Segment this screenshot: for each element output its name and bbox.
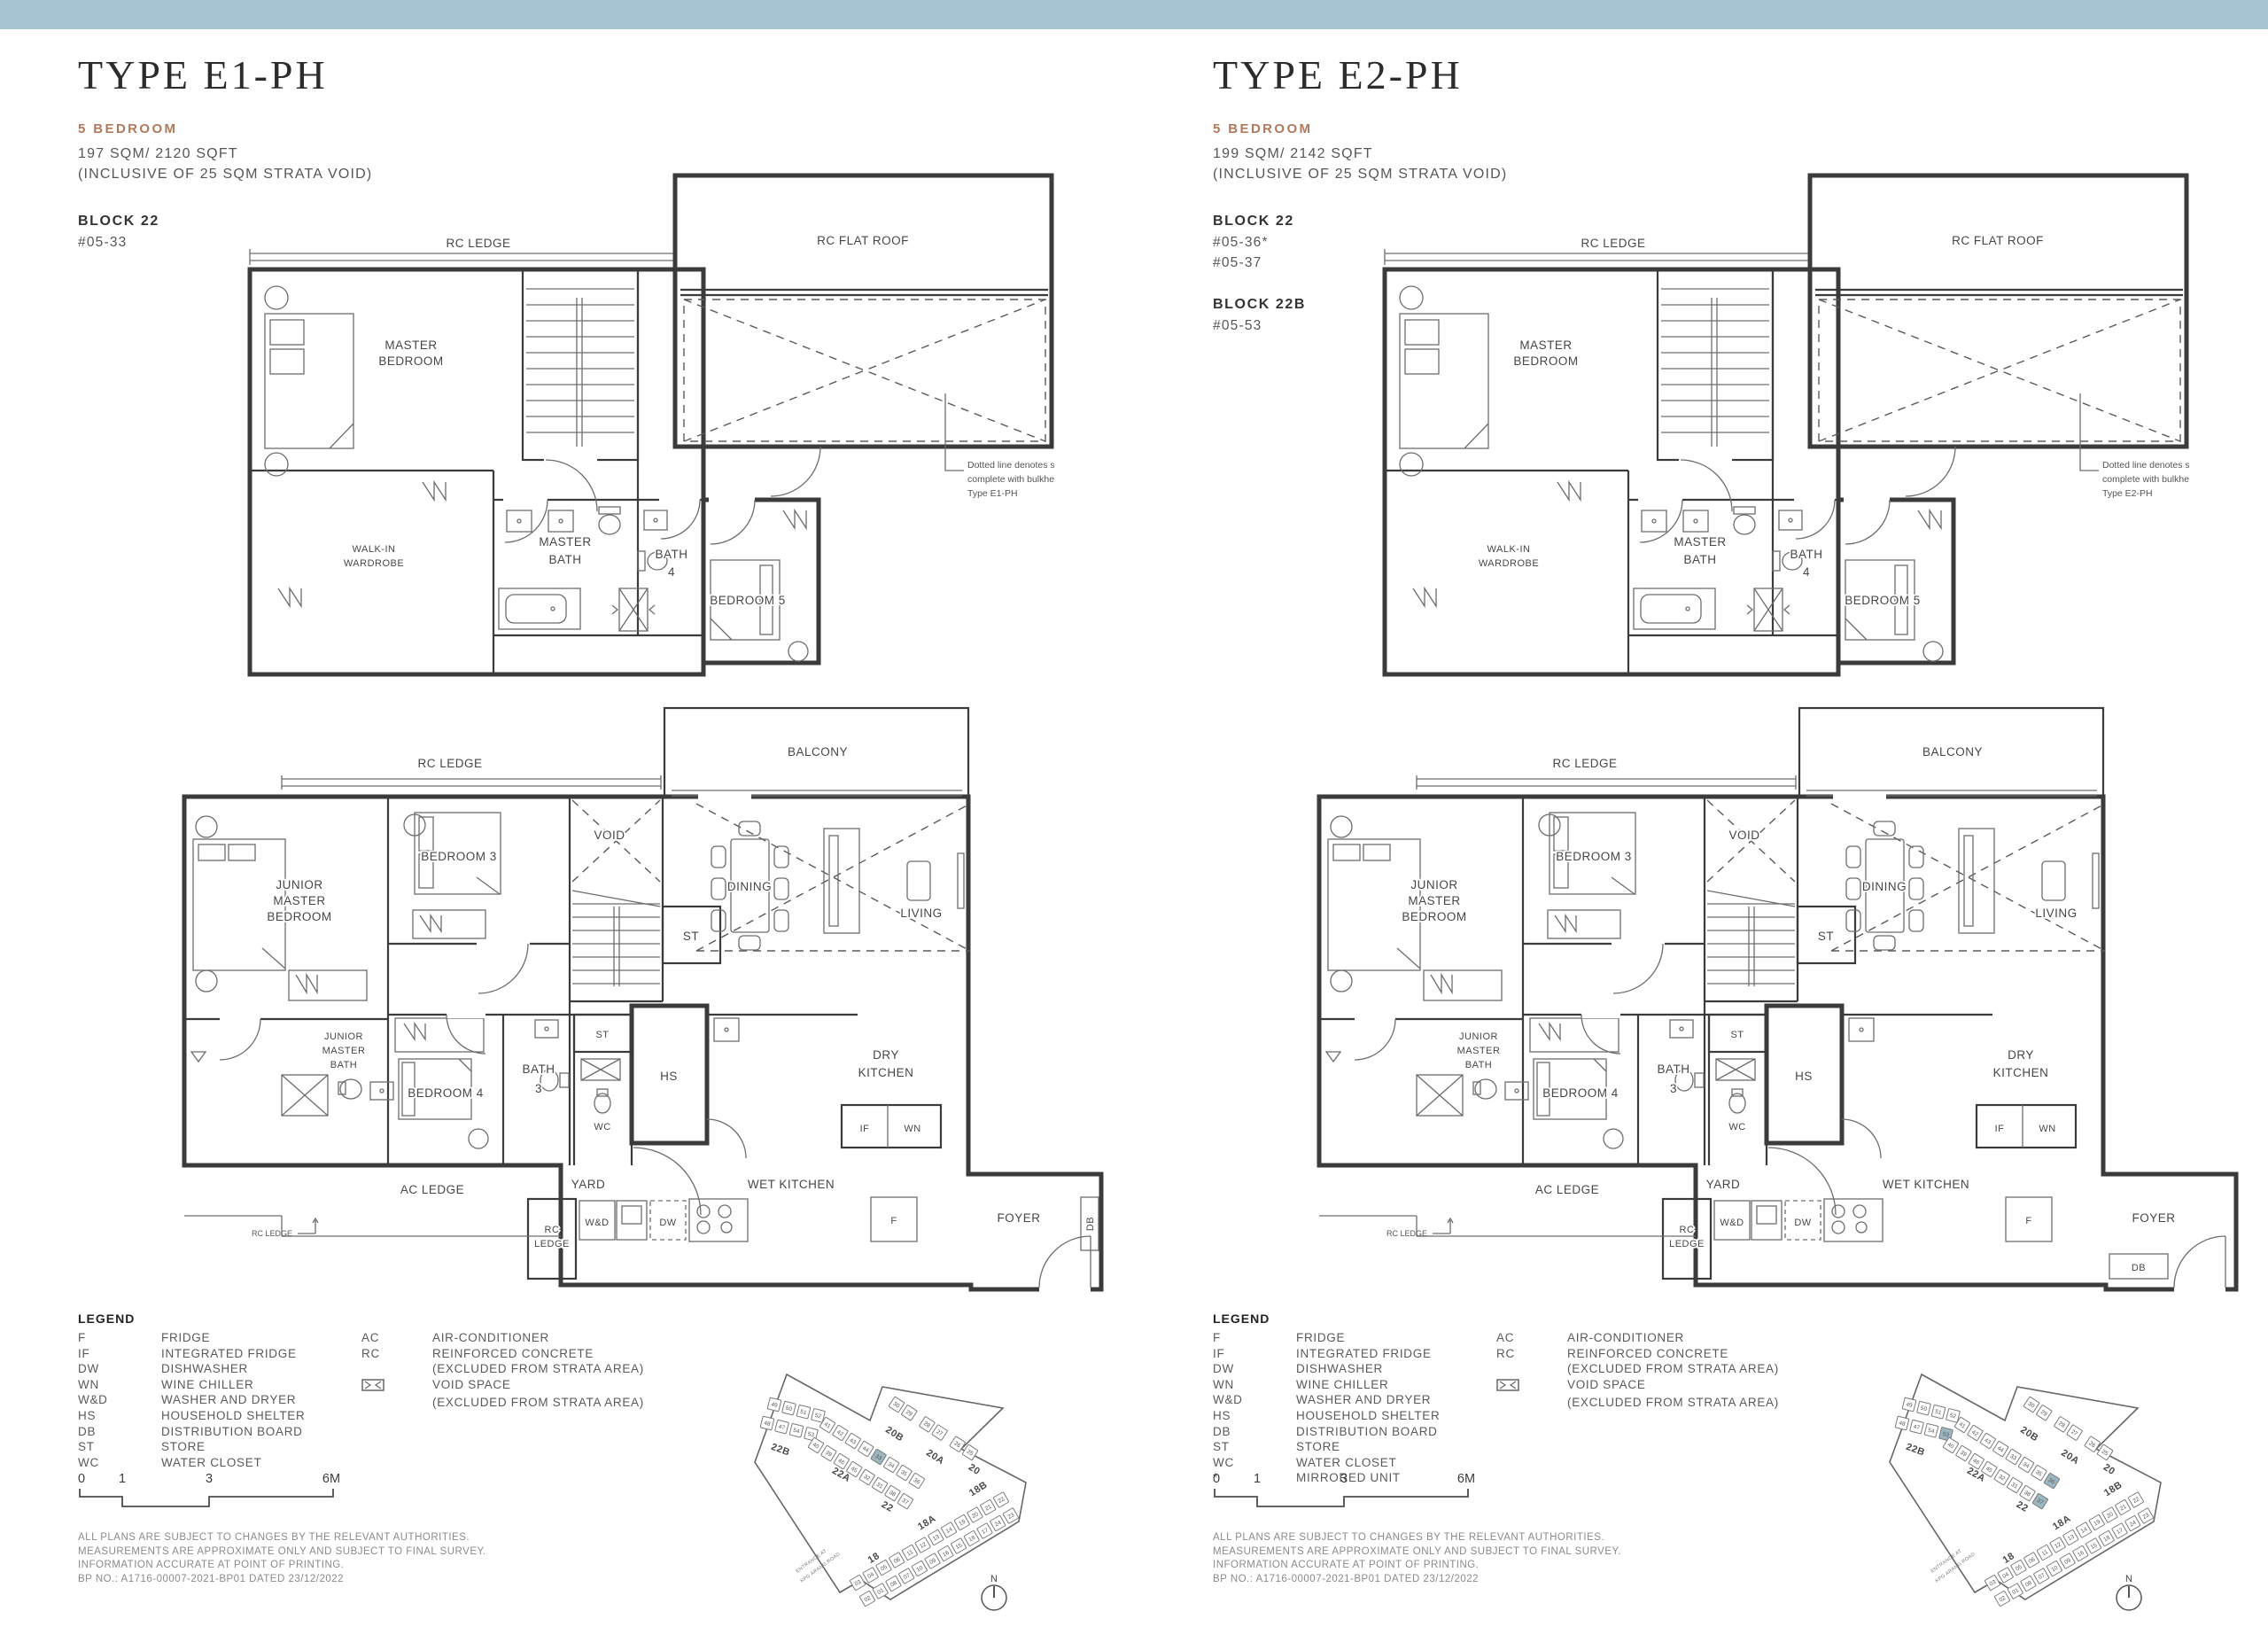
site-stack: 02 <box>1994 1591 2010 1607</box>
lower-floor-plan: RC LEDGE BALCONY JUNIOR MASTER BEDROOM B… <box>1301 704 2242 1358</box>
site-plan-map: 22B22A2220B20A201818A18B4950515248475453… <box>1888 1369 2182 1635</box>
disclaimer-line: ALL PLANS ARE SUBJECT TO CHANGES BY THE … <box>1213 1531 1621 1545</box>
legend-right-column: ACAIR-CONDITIONER RCREINFORCED CONCRETE … <box>1496 1330 1806 1486</box>
room-label-bedroom5: BEDROOM 5 <box>710 594 786 607</box>
legend-row: (EXCLUDED FROM STRATA AREA) <box>361 1361 672 1377</box>
void-hatch <box>1707 800 2105 951</box>
site-stack: 37 <box>897 1493 913 1509</box>
site-stack: 18 <box>964 1530 980 1546</box>
site-stack: 10 <box>912 1560 928 1576</box>
site-stack: 04 <box>863 1568 879 1584</box>
upper-stairs <box>526 289 634 447</box>
site-stack: 20 <box>2102 1507 2118 1523</box>
site-block-label: 18A <box>2051 1514 2073 1533</box>
bedroom-tag: 5 BEDROOM <box>1213 121 1709 136</box>
room-label-store: ST <box>683 930 699 943</box>
site-stack: 28 <box>2054 1416 2070 1432</box>
lower-walls <box>184 708 1101 1289</box>
room-label-walk-in-wardrobe: WALK-IN <box>1487 544 1531 555</box>
strata-void-annotation: Type E2-PH <box>2102 488 2153 499</box>
legend-row: (EXCLUDED FROM STRATA AREA) <box>1496 1361 1806 1377</box>
site-stack: 51 <box>1931 1405 1946 1419</box>
scale-number: 0 <box>78 1472 85 1486</box>
room-label-hs: HS <box>1795 1070 1813 1083</box>
legend-row: HSHOUSEHOLD SHELTER <box>1213 1408 1496 1424</box>
strata-void-annotation: Dotted line denotes strata void <box>2102 460 2189 471</box>
label-integrated-fridge: IF <box>1995 1124 2005 1134</box>
site-stack: 27 <box>2067 1425 2083 1441</box>
site-block-label: 20A <box>924 1448 946 1467</box>
room-label-junior-master-bedroom: MASTER <box>273 894 325 907</box>
room-label-junior-master-bath: BATH <box>1465 1060 1493 1070</box>
site-stack: 42 <box>1967 1425 1983 1441</box>
room-label-balcony: BALCONY <box>1922 745 1983 759</box>
room-label-master-bedroom: MASTER <box>1519 339 1572 352</box>
room-label-store: ST <box>1818 930 1834 943</box>
site-stack: 44 <box>858 1441 874 1457</box>
site-stack: 31 <box>872 1477 888 1493</box>
site-stack: 08 <box>886 1576 902 1592</box>
site-stack: 49 <box>767 1397 781 1412</box>
legend-row: ACAIR-CONDITIONER <box>361 1330 672 1346</box>
site-stack: 21 <box>2115 1499 2131 1515</box>
site-stack: 03 <box>1984 1575 2000 1591</box>
scale-number: 1 <box>119 1472 126 1486</box>
site-block-label: 18B <box>967 1480 990 1499</box>
site-stack: 29 <box>2036 1405 2052 1420</box>
site-stack: 17 <box>2112 1523 2128 1539</box>
annotation-leader <box>945 393 964 471</box>
annotation-leader <box>2080 393 2099 471</box>
upper-stairs <box>1661 289 1769 447</box>
site-stack: 16 <box>2072 1545 2088 1561</box>
room-label-dry-kitchen: KITCHEN <box>1993 1066 2049 1079</box>
site-stack: 34 <box>883 1457 899 1473</box>
room-label-bedroom4: BEDROOM 4 <box>1542 1086 1619 1100</box>
floorplan-panel-left: TYPE E1-PH 5 BEDROOM 197 SQM/ 2120 SQFT … <box>0 0 1134 1650</box>
site-stack: 09 <box>925 1553 941 1569</box>
room-label-master-bedroom: MASTER <box>384 339 437 352</box>
room-label-bath4: BATH <box>655 548 687 561</box>
legend: LEGEND FFRIDGE IFINTEGRATED FRIDGE DWDIS… <box>78 1310 680 1470</box>
site-stack: 13 <box>928 1529 944 1545</box>
site-stack: 38 <box>885 1485 901 1501</box>
legend-row: STSTORE <box>1213 1439 1496 1455</box>
legend-row: STSTORE <box>78 1439 361 1455</box>
site-stack: 23 <box>1003 1508 1019 1524</box>
disclaimer: ALL PLANS ARE SUBJECT TO CHANGES BY THE … <box>1213 1531 1621 1586</box>
site-stack: 47 <box>775 1420 789 1434</box>
site-stack: 11 <box>902 1545 918 1560</box>
legend-row: WCWATER CLOSET <box>78 1455 361 1471</box>
legend-row: FFRIDGE <box>1213 1330 1496 1346</box>
site-block-label: 20 <box>967 1462 983 1477</box>
legend-left-column: FFRIDGE IFINTEGRATED FRIDGE DWDISHWASHER… <box>78 1330 361 1470</box>
room-label-junior-master-bath: JUNIOR <box>1459 1031 1498 1042</box>
annotation-rc-ledge: RC LEDGE <box>1386 1229 1427 1238</box>
site-stack: 44 <box>1992 1441 2008 1457</box>
room-label-rc-ledge: RC LEDGE <box>417 757 482 770</box>
room-label-dry-kitchen: KITCHEN <box>858 1066 914 1079</box>
site-block-label: 18A <box>916 1514 938 1533</box>
scale-number: 6M <box>322 1472 340 1486</box>
legend-row: WNWINE CHILLER <box>1213 1377 1496 1393</box>
site-stack: 28 <box>919 1416 935 1432</box>
room-label-junior-master-bedroom: BEDROOM <box>267 910 331 923</box>
legend-row: FFRIDGE <box>78 1330 361 1346</box>
room-label-foyer: FOYER <box>997 1211 1040 1225</box>
room-label-wet-kitchen: WET KITCHEN <box>748 1178 835 1191</box>
site-stack: 37 <box>2032 1493 2048 1509</box>
room-label-walk-in-wardrobe: WARDROBE <box>344 558 404 569</box>
site-stack: 30 <box>889 1397 905 1413</box>
room-label-rc-ledge: RC LEDGE <box>1581 237 1645 250</box>
site-stack: 15 <box>2085 1538 2101 1554</box>
site-block-label: 18B <box>2102 1480 2124 1499</box>
site-block-label: 22B <box>770 1442 791 1459</box>
site-block-label: 20B <box>883 1425 905 1444</box>
room-label-bedroom4: BEDROOM 4 <box>408 1086 484 1100</box>
disclaimer-line: INFORMATION ACCURATE AT POINT OF PRINTIN… <box>1213 1559 1621 1573</box>
room-label-bath3: 3 <box>1670 1082 1677 1095</box>
room-label-dry-kitchen: DRY <box>2008 1048 2034 1062</box>
site-stack: 50 <box>1917 1401 1931 1415</box>
site-stack: 50 <box>782 1401 796 1415</box>
room-label-void: VOID <box>594 829 625 842</box>
site-stack: 29 <box>901 1405 917 1420</box>
room-label-rc-flat-roof: RC FLAT ROOF <box>817 234 909 247</box>
legend-row: DBDISTRIBUTION BOARD <box>78 1424 361 1440</box>
legend-row: DWDISHWASHER <box>78 1361 361 1377</box>
site-stack: 32 <box>1994 1469 2010 1485</box>
disclaimer-line: BP NO.: A1716-00007-2021-BP01 DATED 23/1… <box>78 1573 486 1587</box>
room-label-ac-ledge: AC LEDGE <box>1535 1183 1599 1196</box>
site-block-label: 22B <box>1905 1442 1926 1459</box>
room-label-junior-master-bath: BATH <box>330 1060 358 1070</box>
site-stack: 35 <box>2031 1465 2047 1481</box>
disclaimer-line: MEASUREMENTS ARE APPROXIMATE ONLY AND SU… <box>78 1545 486 1560</box>
site-stack: 03 <box>850 1575 866 1591</box>
site-stack: 36 <box>909 1473 925 1489</box>
site-stack: 51 <box>796 1405 811 1419</box>
scale-number: 3 <box>1340 1472 1348 1486</box>
lower-stairs <box>1707 891 1795 986</box>
site-block-label: 20 <box>2101 1462 2117 1477</box>
room-label-bedroom3: BEDROOM 3 <box>421 850 497 863</box>
label-wine-chiller: WN <box>2039 1124 2055 1134</box>
legend-row: WNWINE CHILLER <box>78 1377 361 1393</box>
site-stack: 48 <box>760 1416 774 1430</box>
legend-row: W&DWASHER AND DRYER <box>78 1392 361 1408</box>
lower-floor-plan: RC LEDGE BALCONY JUNIOR MASTER BEDROOM B… <box>167 704 1107 1358</box>
disclaimer-line: ALL PLANS ARE SUBJECT TO CHANGES BY THE … <box>78 1531 486 1545</box>
site-stack: 15 <box>951 1538 967 1554</box>
lower-doors <box>1355 793 2225 1293</box>
room-label-rc-ledge: RC LEDGE <box>1552 757 1617 770</box>
site-stack: 19 <box>954 1514 970 1530</box>
disclaimer: ALL PLANS ARE SUBJECT TO CHANGES BY THE … <box>78 1531 486 1586</box>
strata-void-annotation: Dotted line denotes strata void <box>967 460 1054 471</box>
room-label-dry-kitchen: DRY <box>873 1048 899 1062</box>
site-stack: 33 <box>871 1449 887 1465</box>
label-db: DB <box>2132 1263 2146 1273</box>
lower-walls <box>1319 708 2236 1289</box>
legend-row: DWDISHWASHER <box>1213 1361 1496 1377</box>
void-space-symbol <box>1496 1379 1519 1396</box>
label-db: DB <box>1085 1217 1096 1231</box>
brochure-page: TYPE E1-PH 5 BEDROOM 197 SQM/ 2120 SQFT … <box>0 0 2268 1650</box>
legend-row: W&DWASHER AND DRYER <box>1213 1392 1496 1408</box>
site-stack: 23 <box>2138 1508 2154 1524</box>
site-stack: 24 <box>990 1515 1006 1531</box>
unit-type-title: TYPE E1-PH <box>78 51 574 98</box>
legend-left-column: FFRIDGE IFINTEGRATED FRIDGE DWDISHWASHER… <box>1213 1330 1496 1486</box>
site-stack: 30 <box>2023 1397 2039 1413</box>
site-stack: 39 <box>1955 1445 1971 1461</box>
site-stack: 33 <box>2006 1449 2022 1465</box>
site-stack: 31 <box>2007 1477 2023 1493</box>
room-label-junior-master-bedroom: BEDROOM <box>1402 910 1466 923</box>
label-integrated-fridge: IF <box>860 1124 870 1134</box>
room-label-yard: YARD <box>1706 1178 1741 1191</box>
room-label-bath4: BATH <box>1790 548 1822 561</box>
room-label-store-small: ST <box>595 1030 609 1040</box>
lower-stairs <box>572 891 660 986</box>
room-label-bath3: BATH <box>522 1062 555 1076</box>
bedroom-tag: 5 BEDROOM <box>78 121 574 136</box>
site-stack: 21 <box>980 1499 996 1515</box>
room-label-master-bath: MASTER <box>539 535 591 549</box>
room-label-yard: YARD <box>571 1178 606 1191</box>
site-stack: 47 <box>1910 1420 1924 1434</box>
room-label-wet-kitchen: WET KITCHEN <box>1883 1178 1969 1191</box>
room-label-junior-master-bath: MASTER <box>1457 1046 1501 1056</box>
site-plan-map: 22B22A2220B20A201818A18B4950515248475453… <box>753 1369 1047 1635</box>
room-label-bedroom3: BEDROOM 3 <box>1556 850 1632 863</box>
unit-area: 199 SQM/ 2142 SQFT <box>1213 144 1709 164</box>
scale-number: 6M <box>1457 1472 1475 1486</box>
label-dishwasher: DW <box>659 1218 676 1228</box>
room-label-junior-master-bedroom: JUNIOR <box>276 878 322 891</box>
room-label-dining: DINING <box>727 880 772 893</box>
lower-doors <box>220 793 1091 1293</box>
site-stack: 27 <box>932 1425 948 1441</box>
site-stack: 10 <box>2047 1560 2062 1576</box>
room-label-rc-ledge-box: RC <box>545 1225 560 1235</box>
legend-right-column: ACAIR-CONDITIONER RCREINFORCED CONCRETE … <box>361 1330 672 1470</box>
scale-number: 1 <box>1254 1472 1261 1486</box>
site-block-label: 22 <box>2015 1499 2030 1514</box>
room-label-foyer: FOYER <box>2132 1211 2175 1225</box>
legend-row: (EXCLUDED FROM STRATA AREA) <box>1496 1395 1806 1411</box>
site-stack: 14 <box>941 1522 957 1538</box>
room-label-rc-ledge-box: LEDGE <box>1669 1239 1705 1249</box>
disclaimer-line: MEASUREMENTS ARE APPROXIMATE ONLY AND SU… <box>1213 1545 1621 1560</box>
legend-title: LEGEND <box>1213 1310 1815 1327</box>
unit-type-title: TYPE E2-PH <box>1213 51 1709 98</box>
site-stack: 08 <box>2021 1576 2037 1592</box>
room-label-rc-ledge-box: LEDGE <box>534 1239 570 1249</box>
site-stack: 04 <box>1998 1568 2014 1584</box>
room-label-rc-flat-roof: RC FLAT ROOF <box>1952 234 2044 247</box>
room-label-master-bath: BATH <box>548 553 581 566</box>
site-stack: 43 <box>1980 1433 1996 1449</box>
room-label-balcony: BALCONY <box>788 745 848 759</box>
site-stack: 39 <box>820 1445 836 1461</box>
void-hatch <box>572 800 970 951</box>
scale-number: 0 <box>1213 1472 1220 1486</box>
room-label-dining: DINING <box>1862 880 1907 893</box>
site-stack: 34 <box>2018 1457 2034 1473</box>
room-label-junior-master-bath: JUNIOR <box>324 1031 363 1042</box>
upper-walls <box>1385 175 2186 674</box>
annotation-rc-ledge: RC LEDGE <box>252 1229 292 1238</box>
room-label-rc-ledge-box: RC <box>1680 1225 1695 1235</box>
room-label-bedroom5: BEDROOM 5 <box>1845 594 1921 607</box>
legend-row: IFINTEGRATED FRIDGE <box>1213 1346 1496 1362</box>
room-label-wc: WC <box>1728 1122 1745 1132</box>
room-label-walk-in-wardrobe: WALK-IN <box>353 544 396 555</box>
site-stack: 12 <box>2050 1537 2066 1553</box>
site-stack: 16 <box>937 1545 953 1561</box>
legend-row: VOID SPACE <box>1496 1377 1806 1396</box>
site-stack: 19 <box>2089 1514 2105 1530</box>
site-stack: 36 <box>2044 1473 2060 1489</box>
label-fridge: F <box>890 1216 897 1226</box>
label-wine-chiller: WN <box>904 1124 920 1134</box>
site-stack: 05 <box>876 1560 892 1576</box>
legend-row: WCWATER CLOSET <box>1213 1455 1496 1471</box>
site-stack: 09 <box>2060 1553 2076 1569</box>
room-label-bath3: 3 <box>535 1082 542 1095</box>
room-label-bath4: 4 <box>1803 565 1810 579</box>
site-stack: 35 <box>897 1465 913 1481</box>
site-stack: 20 <box>967 1507 983 1523</box>
legend: LEGEND FFRIDGE IFINTEGRATED FRIDGE DWDIS… <box>1213 1310 1815 1486</box>
room-label-ac-ledge: AC LEDGE <box>400 1183 464 1196</box>
site-stack: 38 <box>2020 1485 2036 1501</box>
site-stack: 54 <box>789 1423 804 1437</box>
site-stack: 54 <box>1924 1423 1938 1437</box>
room-label-store-small: ST <box>1730 1030 1744 1040</box>
disclaimer-line: INFORMATION ACCURATE AT POINT OF PRINTIN… <box>78 1559 486 1573</box>
site-stack: 12 <box>915 1537 931 1553</box>
site-stack: 18 <box>2099 1530 2115 1546</box>
site-stack: 22 <box>2128 1492 2144 1508</box>
legend-row: HSHOUSEHOLD SHELTER <box>78 1408 361 1424</box>
room-label-bath3: BATH <box>1657 1062 1689 1076</box>
strata-void-annotation: complete with bulkhead at <box>2102 474 2189 485</box>
legend-row: DBDISTRIBUTION BOARD <box>1213 1424 1496 1440</box>
room-label-junior-master-bedroom: MASTER <box>1408 894 1460 907</box>
label-washer-dryer: W&D <box>1720 1218 1744 1228</box>
room-label-master-bath: BATH <box>1683 553 1716 566</box>
scale-number: 3 <box>206 1472 213 1486</box>
room-label-master-bath: MASTER <box>1674 535 1726 549</box>
north-label: N <box>2125 1574 2132 1584</box>
void-space-symbol <box>361 1379 384 1396</box>
room-label-hs: HS <box>660 1070 678 1083</box>
site-stack: 43 <box>845 1433 861 1449</box>
legend-row: IFINTEGRATED FRIDGE <box>78 1346 361 1362</box>
room-label-rc-ledge: RC LEDGE <box>446 237 510 250</box>
site-block-label: 20A <box>2059 1448 2081 1467</box>
scale-bar: 0 1 3 6M <box>1211 1471 1486 1514</box>
north-label: N <box>990 1574 998 1584</box>
upper-floor-plan: RC LEDGE RC FLAT ROOF MASTER BEDROOM WAL… <box>1376 165 2189 712</box>
site-stack: 05 <box>2011 1560 2027 1576</box>
label-washer-dryer: W&D <box>585 1218 609 1228</box>
legend-row: VOID SPACE <box>361 1377 672 1396</box>
site-stack: 49 <box>1902 1397 1916 1412</box>
label-fridge: F <box>2025 1216 2031 1226</box>
site-block-label: 20B <box>2018 1425 2040 1444</box>
floorplan-panel-right: TYPE E2-PH 5 BEDROOM 199 SQM/ 2142 SQFT … <box>1135 0 2268 1650</box>
room-label-living: LIVING <box>900 907 942 920</box>
room-label-master-bedroom: BEDROOM <box>378 354 443 368</box>
legend-row: ACAIR-CONDITIONER <box>1496 1330 1806 1346</box>
room-label-master-bedroom: BEDROOM <box>1513 354 1578 368</box>
strata-void-hatch <box>1819 300 2180 441</box>
site-stack: 02 <box>859 1591 875 1607</box>
site-stack: 32 <box>859 1469 875 1485</box>
disclaimer-line: BP NO.: A1716-00007-2021-BP01 DATED 23/1… <box>1213 1573 1621 1587</box>
room-label-junior-master-bath: MASTER <box>322 1046 366 1056</box>
legend-row: RCREINFORCED CONCRETE <box>1496 1346 1806 1362</box>
site-stack: 14 <box>2076 1522 2092 1538</box>
site-stack: 13 <box>2062 1529 2078 1545</box>
site-stack: 07 <box>2033 1568 2049 1584</box>
room-label-junior-master-bedroom: JUNIOR <box>1410 878 1457 891</box>
site-stack: 25 <box>962 1444 978 1460</box>
strata-void-annotation: Type E1-PH <box>967 488 1018 499</box>
room-label-bath4: 4 <box>668 565 675 579</box>
site-stack: 25 <box>2097 1444 2113 1460</box>
upper-floor-plan: RC LEDGE RC FLAT ROOF MASTER BEDROOM WAL… <box>241 165 1054 712</box>
room-label-living: LIVING <box>2035 907 2077 920</box>
site-stack: 17 <box>977 1523 993 1539</box>
legend-title: LEGEND <box>78 1310 680 1327</box>
site-stack: 48 <box>1895 1416 1909 1430</box>
strata-void-annotation: complete with bulkhead at <box>967 474 1054 485</box>
unit-area: 197 SQM/ 2120 SQFT <box>78 144 574 164</box>
site-stack: 24 <box>2124 1515 2140 1531</box>
site-stack: 42 <box>832 1425 848 1441</box>
scale-bar: 0 1 3 6M <box>76 1471 351 1514</box>
site-stack: 06 <box>889 1553 905 1568</box>
upper-walls <box>250 175 1052 674</box>
label-dishwasher: DW <box>1794 1218 1811 1228</box>
site-stack: 06 <box>2023 1553 2039 1568</box>
room-label-wc: WC <box>594 1122 610 1132</box>
site-stack: 11 <box>2037 1545 2053 1560</box>
strata-void-hatch <box>684 300 1045 441</box>
legend-row: RCREINFORCED CONCRETE <box>361 1346 672 1362</box>
site-stack: 07 <box>898 1568 914 1584</box>
site-stack: 22 <box>993 1492 1009 1508</box>
site-block-label: 22 <box>880 1499 895 1514</box>
room-label-void: VOID <box>1728 829 1759 842</box>
legend-row: (EXCLUDED FROM STRATA AREA) <box>361 1395 672 1411</box>
room-label-walk-in-wardrobe: WARDROBE <box>1479 558 1539 569</box>
